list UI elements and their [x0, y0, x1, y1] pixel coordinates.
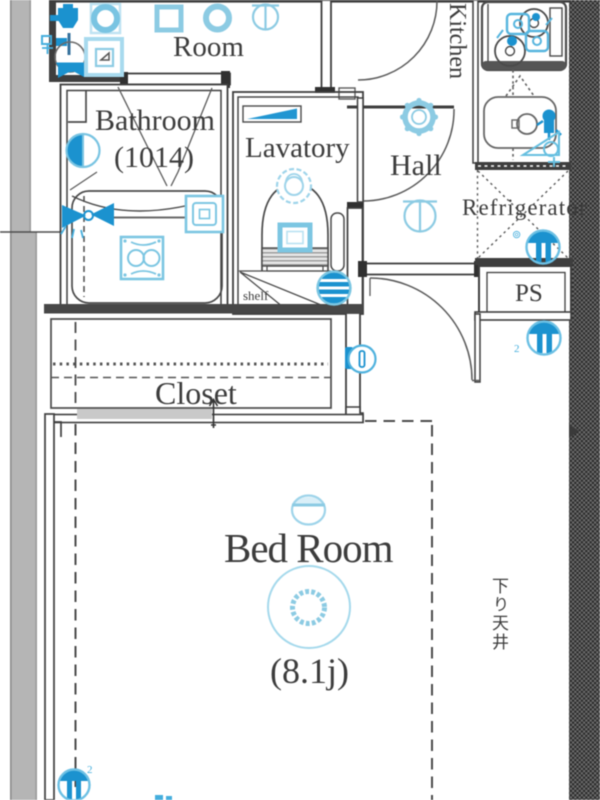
svg-text:Hall: Hall	[390, 149, 442, 182]
svg-text:天: 天	[492, 614, 509, 633]
svg-text:井: 井	[492, 633, 509, 652]
svg-text:2: 2	[514, 343, 520, 355]
svg-text:Kitchen: Kitchen	[444, 3, 470, 79]
svg-text:(8.1j): (8.1j)	[270, 651, 349, 691]
svg-text:Closet: Closet	[155, 375, 237, 411]
svg-text:2: 2	[87, 764, 93, 776]
svg-text:Refrigerator: Refrigerator	[462, 195, 588, 220]
svg-text:Bed Room: Bed Room	[224, 525, 394, 571]
svg-text:下: 下	[492, 577, 509, 596]
svg-text:Bathroom: Bathroom	[95, 104, 215, 137]
svg-text:shelf: shelf	[243, 288, 269, 303]
svg-text:り: り	[493, 597, 509, 614]
svg-text:(1014): (1014)	[114, 141, 194, 174]
svg-text:Lavatory: Lavatory	[245, 132, 350, 164]
svg-text:PS: PS	[515, 280, 543, 307]
svg-text:⊚: ⊚	[512, 229, 521, 241]
svg-text:Room: Room	[173, 31, 244, 63]
